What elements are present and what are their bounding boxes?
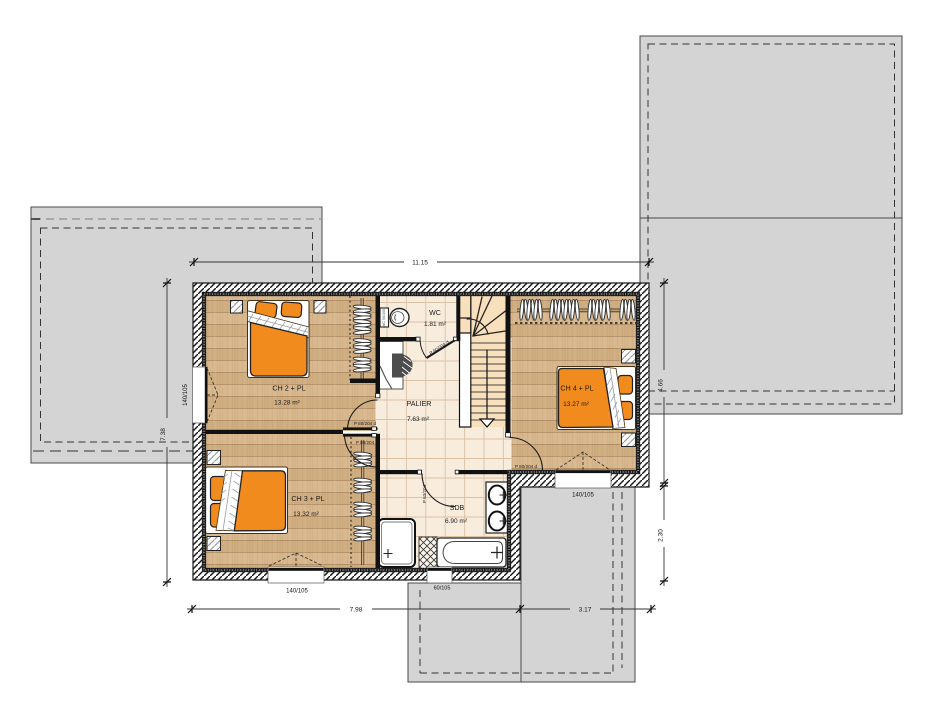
svg-text:CH 4 + PL: CH 4 + PL — [560, 384, 593, 393]
svg-text:P 80/204 d: P 80/204 d — [354, 421, 377, 426]
svg-text:7.98: 7.98 — [350, 607, 363, 614]
svg-text:4.66: 4.66 — [658, 379, 665, 392]
svg-text:1.81 m²: 1.81 m² — [424, 321, 447, 328]
svg-text:13.32 m²: 13.32 m² — [293, 511, 319, 518]
svg-text:3.17: 3.17 — [579, 607, 592, 614]
svg-text:7.63 m²: 7.63 m² — [407, 416, 430, 423]
svg-text:140/105: 140/105 — [183, 384, 189, 406]
svg-text:P 80/204 d: P 80/204 d — [515, 464, 538, 469]
svg-text:2.30: 2.30 — [658, 529, 665, 542]
svg-text:P 80/204: P 80/204 — [356, 440, 375, 445]
svg-text:CH 2 + PL: CH 2 + PL — [272, 384, 305, 393]
svg-text:P 63/204: P 63/204 — [422, 484, 427, 503]
svg-text:11.15: 11.15 — [412, 260, 428, 267]
svg-text:WC: WC — [429, 310, 441, 317]
svg-text:PALIER: PALIER — [406, 399, 431, 408]
svg-text:SDB: SDB — [450, 505, 465, 512]
svg-text:7.38: 7.38 — [160, 428, 167, 441]
svg-text:13.27 m²: 13.27 m² — [563, 401, 589, 408]
svg-text:140/105: 140/105 — [286, 589, 308, 595]
svg-text:CH 3 + PL: CH 3 + PL — [291, 494, 324, 503]
svg-text:WC 50/305: WC 50/305 — [382, 309, 386, 327]
svg-text:140/105: 140/105 — [572, 493, 594, 499]
svg-text:60/105: 60/105 — [434, 586, 451, 592]
svg-text:6.90 m²: 6.90 m² — [445, 518, 468, 525]
svg-text:13.28 m²: 13.28 m² — [274, 400, 300, 407]
